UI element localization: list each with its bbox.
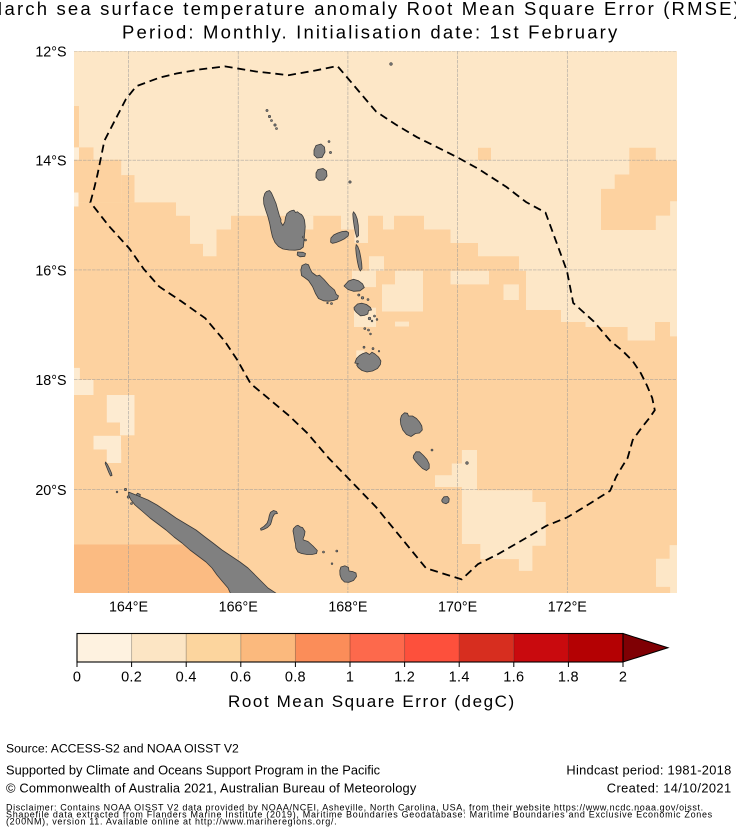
svg-text:Supported by Climate and Ocean: Supported by Climate and Oceans Support … [6,763,381,778]
svg-text:0.6: 0.6 [230,670,251,686]
svg-text:(200NM), version 11. Available: (200NM), version 11. Available online at… [6,817,337,827]
svg-text:170°E: 170°E [438,600,477,616]
svg-text:Created: 14/10/2021: Created: 14/10/2021 [607,780,732,795]
svg-text:0.2: 0.2 [121,670,142,686]
svg-text:18°S: 18°S [35,373,66,389]
svg-text:164°E: 164°E [109,600,148,616]
svg-text:Root Mean Square Error (degC): Root Mean Square Error (degC) [228,692,516,711]
svg-text:0.4: 0.4 [176,670,197,686]
svg-text:March sea surface temperature: March sea surface temperature anomaly Ro… [0,0,736,19]
svg-text:16°S: 16°S [35,263,66,279]
svg-text:1.2: 1.2 [394,670,415,686]
svg-text:1.4: 1.4 [449,670,470,686]
svg-text:Hindcast period: 1981-2018: Hindcast period: 1981-2018 [566,763,731,778]
svg-text:© Commonwealth of Australia 20: © Commonwealth of Australia 2021, Austra… [6,780,417,795]
svg-text:Period: Monthly. Initialisatio: Period: Monthly. Initialisation date: 1s… [122,21,619,42]
svg-text:1: 1 [346,670,354,686]
svg-text:172°E: 172°E [548,600,587,616]
svg-text:2: 2 [619,670,627,686]
svg-text:0.8: 0.8 [285,670,306,686]
svg-text:166°E: 166°E [219,600,258,616]
svg-text:12°S: 12°S [35,45,66,61]
svg-text:1.8: 1.8 [558,670,579,686]
svg-text:14°S: 14°S [35,154,66,170]
svg-text:20°S: 20°S [35,483,66,499]
svg-text:0: 0 [73,670,81,686]
svg-text:1.6: 1.6 [503,670,524,686]
svg-text:168°E: 168°E [328,600,367,616]
svg-text:Source: ACCESS-S2 and NOAA OIS: Source: ACCESS-S2 and NOAA OISST V2 [6,742,239,756]
